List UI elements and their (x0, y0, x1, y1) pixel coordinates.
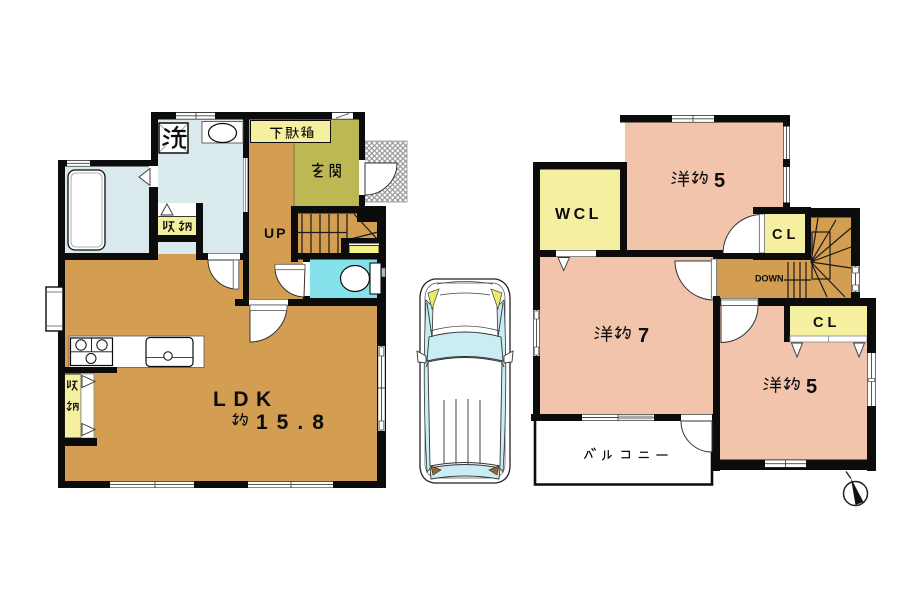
svg-text:5: 5 (806, 376, 817, 398)
svg-text:DOWN: DOWN (755, 274, 784, 284)
svg-text:WCL: WCL (555, 206, 602, 223)
svg-text:CL: CL (772, 227, 799, 243)
svg-text:UP: UP (264, 225, 287, 241)
svg-text:5: 5 (714, 170, 725, 192)
svg-text:LDK: LDK (213, 388, 279, 411)
svg-text:7: 7 (638, 325, 649, 347)
svg-text:CL: CL (813, 315, 840, 331)
svg-text:15.8: 15.8 (256, 411, 333, 434)
